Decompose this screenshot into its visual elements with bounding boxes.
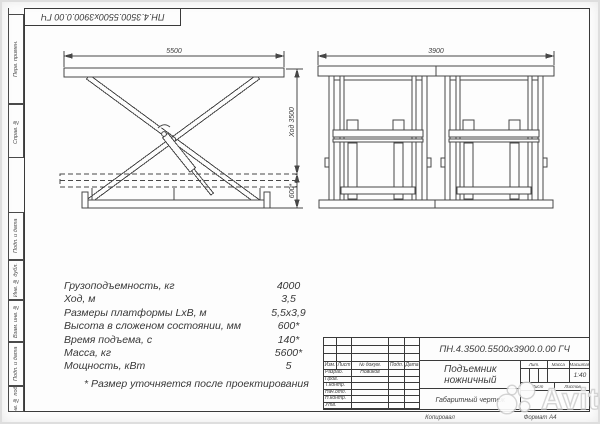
col-sign: Подп.: [389, 362, 405, 370]
engineering-drawing-sheet: { "sheet": { "top_designation": "ПН.4.35…: [0, 0, 600, 424]
spec-value: 5: [251, 360, 326, 373]
margin-label: Инв. № подл.: [13, 386, 19, 412]
margin-cell-vzam-inv: Взам. инв. №: [8, 300, 24, 342]
margin-cell-podp-data-2: Подп. и дата: [8, 342, 24, 386]
spec-row: Грузоподъемность, кг4000: [64, 280, 326, 293]
col-izm: Изм.: [324, 362, 337, 370]
top-designation-box: ПН.4.3500.5500х3900.0.00 ГЧ: [24, 8, 181, 26]
margin-label: Подп. и дата: [13, 347, 19, 381]
margin-label: Взам. инв. №: [13, 304, 19, 338]
col-doc: № докум.: [352, 362, 389, 370]
lit-label: Лит.: [521, 361, 548, 368]
front-view-drawing: 3900: [308, 42, 564, 220]
margin-label: Инв. № дубл.: [13, 263, 19, 297]
mass-label: Масса: [548, 361, 570, 368]
spec-label: Грузоподъемность, кг: [64, 280, 251, 293]
spec-label: Время подъема, с: [64, 334, 251, 347]
scale-value: 1:40: [570, 369, 591, 382]
sig-name: [352, 403, 389, 410]
platform-raised: [64, 68, 284, 77]
spec-label: Ход, м: [64, 293, 251, 306]
dim-label-3900: 3900: [428, 48, 444, 55]
spec-row: Масса, кг5600*: [64, 347, 326, 360]
col-date: Дата: [405, 362, 419, 370]
spec-value: 3,5: [251, 293, 326, 306]
top-designation-text: ПН.4.3500.5500х3900.0.00 ГЧ: [41, 12, 165, 22]
margin-label: Подп. и дата: [13, 219, 19, 253]
spec-row: Высота в сложеном состоянии, мм600*: [64, 320, 326, 333]
dim-label-hod-3500: Ход 3500: [288, 107, 296, 138]
copied-label: Копировал: [405, 413, 475, 423]
platform-slab: [318, 66, 554, 76]
spec-label: Размеры платформы LхВ, м: [64, 307, 251, 320]
spec-value: 5600*: [251, 347, 326, 360]
spec-label: Мощность, кВт: [64, 360, 251, 373]
platform-lowered-dashed: [60, 174, 296, 187]
spec-row: Мощность, кВт5: [64, 360, 326, 373]
dim-label-5500: 5500: [166, 48, 182, 55]
side-view-drawing: 5500 Ход 3500 600*: [52, 42, 308, 220]
tower-right: [435, 76, 553, 208]
scale-label: Масштаб: [570, 361, 591, 368]
margin-cell-perv-primen: Перв. примен.: [8, 14, 24, 104]
dim-label-600: 600*: [289, 184, 296, 199]
avito-logo-icon: [498, 383, 544, 423]
sig-role: Утв.: [324, 403, 352, 410]
spec-row: Размеры платформы LхВ, м5,5х3,9: [64, 307, 326, 320]
spec-value: 4000: [251, 280, 326, 293]
spec-footnote: * Размер уточняется после проектирования: [84, 378, 309, 390]
avito-watermark-text: Avito: [541, 383, 600, 417]
tower-left: [319, 76, 437, 208]
margin-cell-sprav-no: Справ. №: [8, 104, 24, 158]
spec-label: Масса, кг: [64, 347, 251, 360]
document-designation: ПН.4.3500.5500х3900.0.00 ГЧ: [420, 338, 589, 361]
margin-cell-inv-dubl: Инв. № дубл.: [8, 260, 24, 300]
spec-row: Ход, м3,5: [64, 293, 326, 306]
col-list: Лист: [337, 362, 352, 370]
margin-cell-inv-podl: Инв. № подл.: [8, 386, 24, 412]
spec-value: 600*: [251, 320, 326, 333]
specifications-list: Грузоподъемность, кг4000 Ход, м3,5 Разме…: [64, 280, 326, 374]
margin-label: Перв. примен.: [13, 41, 19, 78]
spec-row: Время подъема, с140*: [64, 334, 326, 347]
spec-label: Высота в сложеном состоянии, мм: [64, 320, 251, 333]
margin-cell-podp-data-1: Подп. и дата: [8, 212, 24, 260]
title-block-signatures: Изм. Лист № докум. Подп. Дата Разраб. Но…: [324, 338, 420, 409]
spec-value: 5,5х3,9: [251, 307, 326, 320]
spec-value: 140*: [251, 334, 326, 347]
margin-label: Справ. №: [13, 118, 19, 143]
dimension-closed-600: [268, 174, 303, 208]
